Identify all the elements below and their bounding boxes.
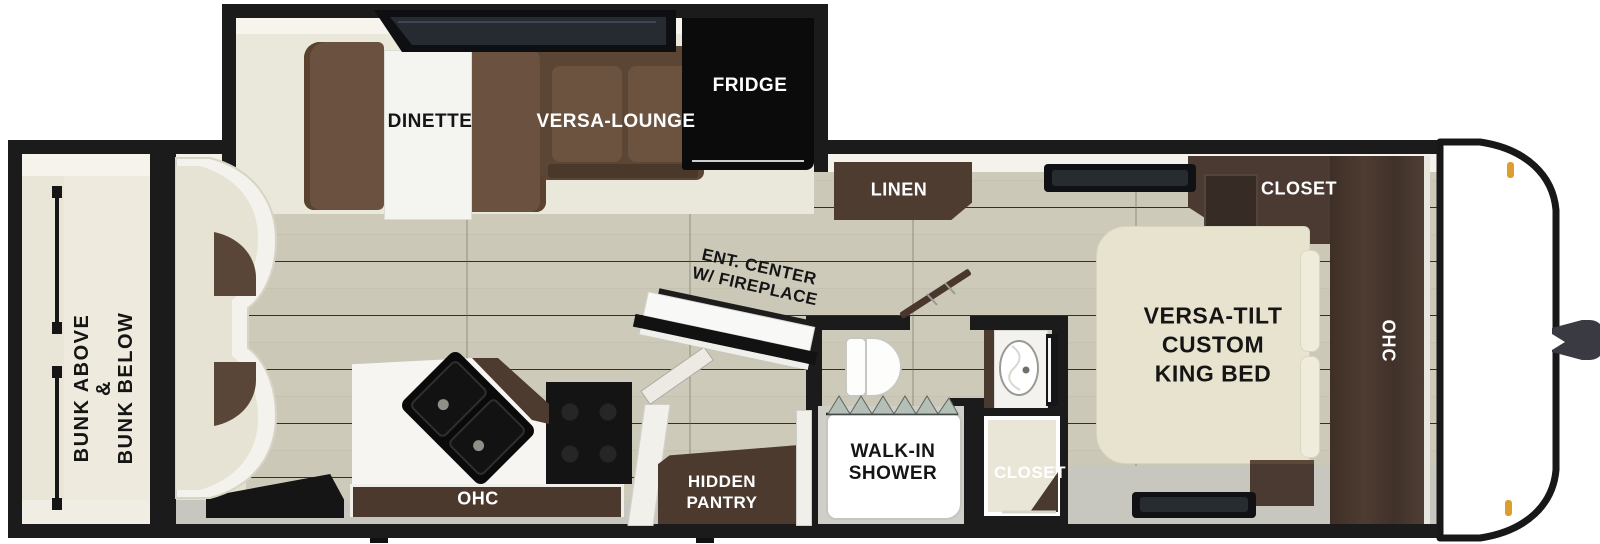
- rear-curved-cabinet: [176, 158, 276, 498]
- marker-light: [1505, 500, 1512, 516]
- versa-lounge-label: VERSA-LOUNGE: [536, 111, 695, 133]
- linen-label: LINEN: [871, 180, 928, 201]
- king-bed-label: VERSA-TILT CUSTOM KING BED: [1144, 302, 1283, 389]
- bathroom-closet-label: CLOSET: [994, 463, 1066, 483]
- shower-curtain: [826, 396, 958, 414]
- kitchen-ohc-label: OHC: [457, 489, 499, 510]
- fridge-label: FRIDGE: [713, 75, 788, 97]
- marker-light: [1507, 162, 1514, 178]
- walk-in-shower-label: WALK-IN SHOWER: [849, 441, 938, 485]
- bedroom-closet-label: CLOSET: [1261, 179, 1337, 200]
- kitchen-sink: [399, 349, 538, 488]
- floorplan-canvas: BUNK ABOVE & BUNK BELOW DINETTE VERSA-LO…: [0, 0, 1600, 544]
- dinette-label: DINETTE: [388, 111, 473, 133]
- bunk-room-label: BUNK ABOVE & BUNK BELOW: [71, 312, 137, 465]
- hidden-pantry-label: HIDDEN PANTRY: [687, 471, 758, 513]
- toilet: [846, 338, 901, 396]
- slideout-window: [374, 10, 676, 52]
- bathroom-sink: [1000, 341, 1038, 395]
- bathroom-door: [899, 268, 972, 319]
- bedroom-ohc-label: OHC: [1378, 320, 1399, 363]
- front-cap: [1440, 142, 1600, 538]
